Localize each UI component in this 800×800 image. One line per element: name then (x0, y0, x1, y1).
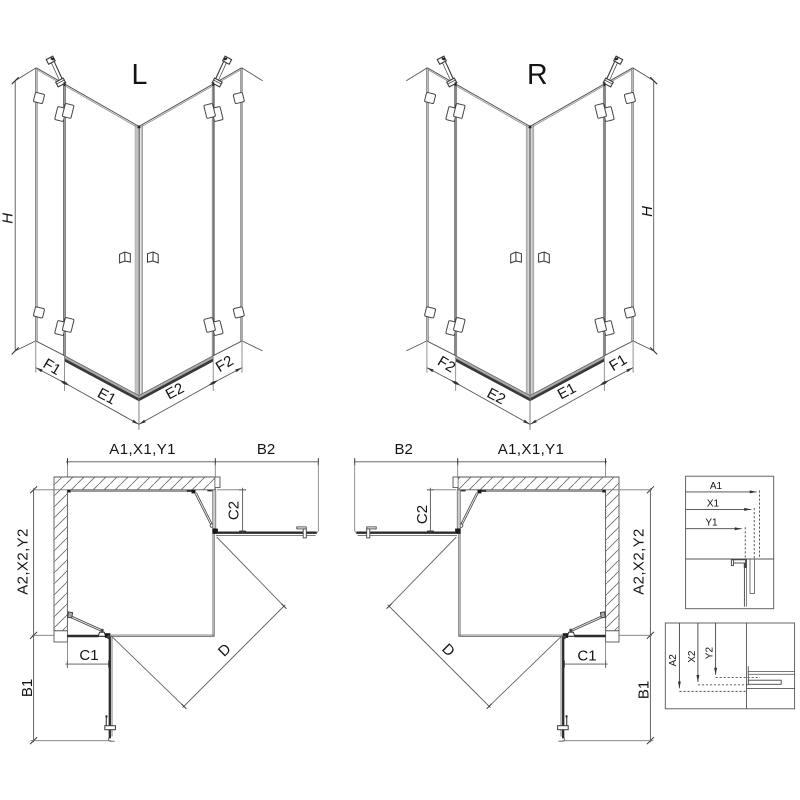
svg-text:B1: B1 (19, 679, 36, 697)
svg-text:A1: A1 (710, 481, 723, 492)
svg-text:B2: B2 (395, 441, 413, 458)
svg-text:L: L (132, 59, 148, 91)
svg-text:A2,X2,Y2: A2,X2,Y2 (14, 528, 31, 595)
svg-text:H: H (0, 213, 17, 224)
svg-text:H: H (639, 206, 656, 217)
svg-text:E2: E2 (484, 385, 508, 409)
svg-text:Y2: Y2 (705, 647, 716, 660)
svg-text:Y1: Y1 (705, 518, 718, 529)
svg-text:A2: A2 (668, 654, 679, 667)
svg-text:A1,X1,Y1: A1,X1,Y1 (109, 441, 176, 458)
svg-text:A1,X1,Y1: A1,X1,Y1 (498, 441, 565, 458)
svg-text:F1: F1 (40, 355, 64, 379)
svg-text:X1: X1 (707, 499, 720, 510)
svg-text:D: D (438, 640, 458, 660)
svg-text:B2: B2 (257, 441, 275, 458)
svg-text:D: D (215, 640, 235, 660)
svg-text:F2: F2 (434, 353, 458, 377)
svg-text:R: R (527, 59, 548, 91)
svg-text:C1: C1 (79, 647, 98, 664)
svg-text:C2: C2 (414, 505, 431, 524)
svg-text:X2: X2 (687, 650, 698, 663)
svg-text:B1: B1 (636, 681, 653, 699)
svg-text:C1: C1 (577, 648, 596, 665)
svg-text:C2: C2 (226, 501, 243, 520)
svg-text:A2,X2,Y2: A2,X2,Y2 (630, 528, 647, 595)
